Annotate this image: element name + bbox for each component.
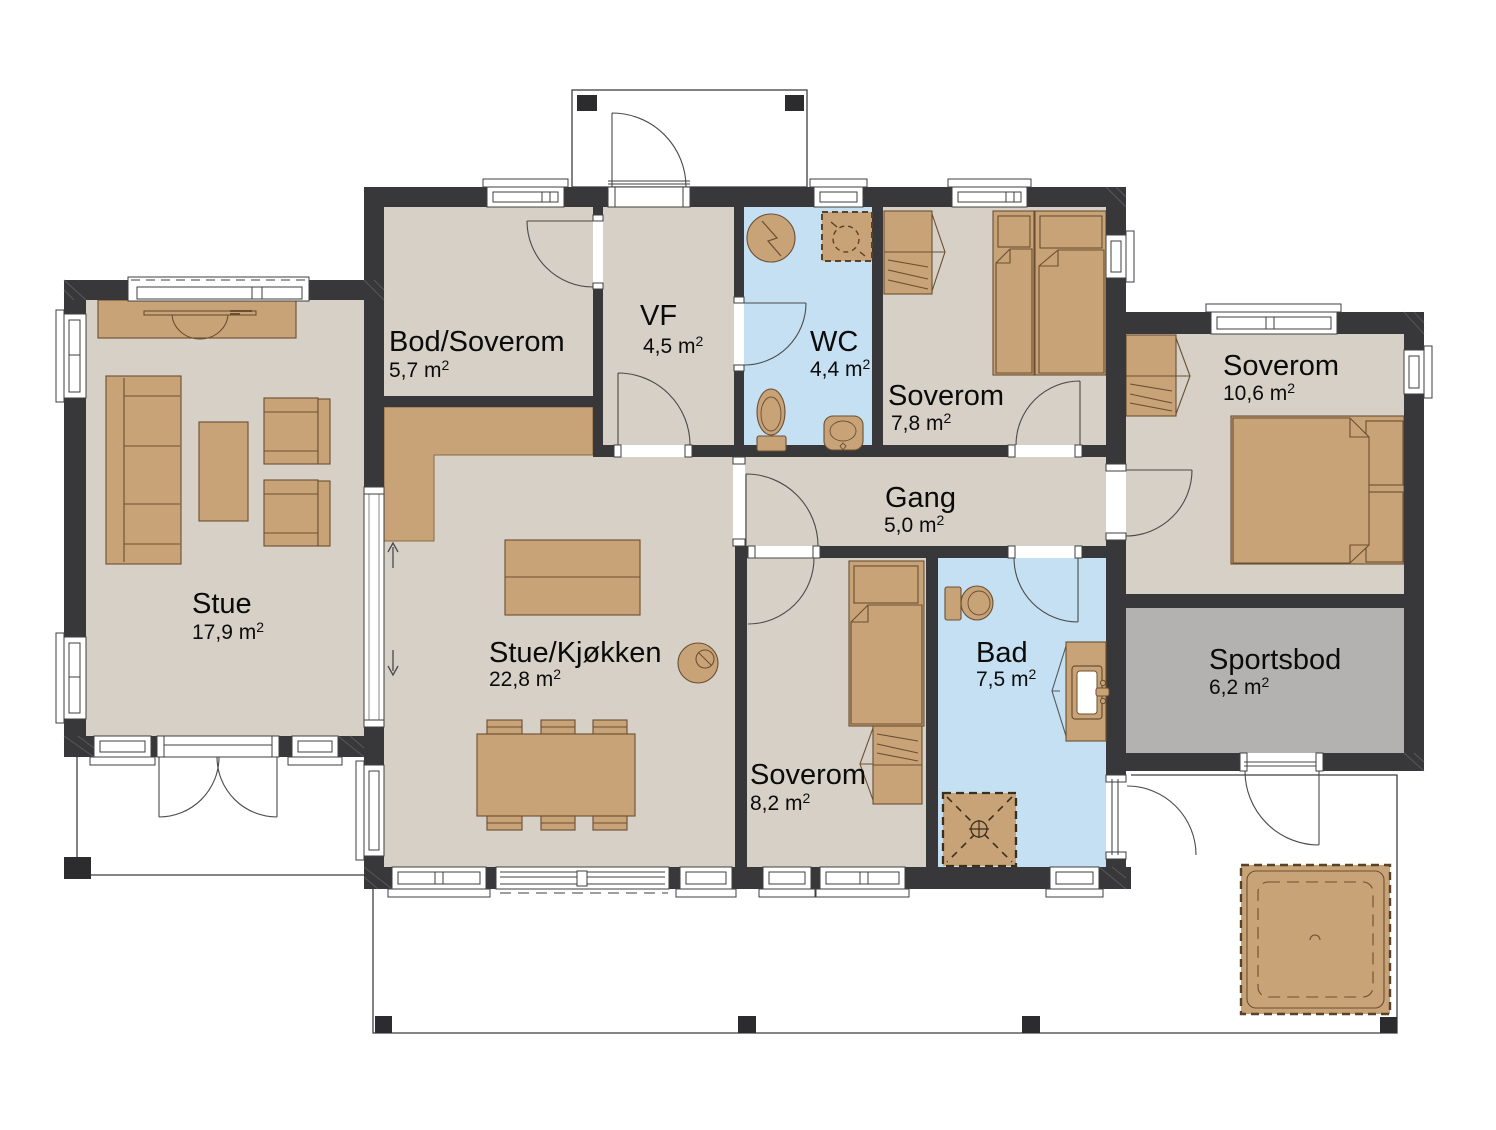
svg-text:22,8 m2: 22,8 m2 (489, 666, 561, 691)
svg-text:7,8 m2: 7,8 m2 (891, 410, 952, 435)
svg-text:7,5 m2: 7,5 m2 (976, 666, 1037, 691)
svg-text:5,0 m2: 5,0 m2 (884, 512, 945, 537)
svg-text:Bad: Bad (976, 637, 1028, 669)
svg-text:Stue/Kjøkken: Stue/Kjøkken (489, 637, 661, 669)
svg-text:8,2 m2: 8,2 m2 (750, 790, 811, 815)
svg-text:Soverom: Soverom (750, 759, 866, 791)
svg-text:4,5 m2: 4,5 m2 (643, 333, 704, 358)
svg-text:17,9 m2: 17,9 m2 (192, 619, 264, 644)
svg-text:Bod/Soverom: Bod/Soverom (389, 326, 565, 358)
svg-text:6,2 m2: 6,2 m2 (1209, 674, 1270, 699)
svg-text:10,6 m2: 10,6 m2 (1223, 380, 1295, 405)
svg-text:VF: VF (640, 300, 677, 332)
svg-text:Soverom: Soverom (888, 380, 1004, 412)
svg-text:5,7 m2: 5,7 m2 (389, 357, 450, 382)
svg-text:Soverom: Soverom (1223, 350, 1339, 382)
svg-text:4,4 m2: 4,4 m2 (810, 356, 871, 381)
svg-text:Stue: Stue (192, 588, 252, 620)
svg-text:WC: WC (810, 326, 858, 358)
svg-text:Gang: Gang (885, 482, 956, 514)
svg-text:Sportsbod: Sportsbod (1209, 644, 1341, 676)
